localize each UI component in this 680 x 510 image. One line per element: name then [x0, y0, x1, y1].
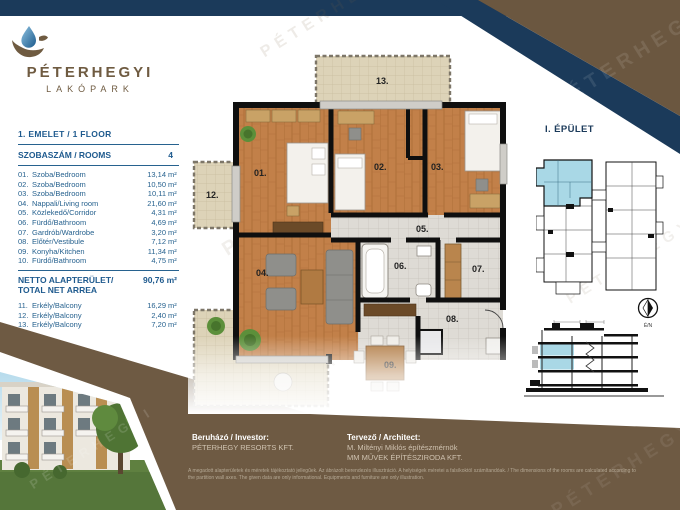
architect-block: Tervező / Architect: M. Miltényi Miklós …: [347, 432, 547, 463]
room-row: 05.Közlekedő/Corridor4,31m²: [18, 208, 179, 218]
room-unit: m²: [166, 170, 179, 180]
room-name: Szoba/Bedroom: [32, 170, 142, 180]
room-no: 05.: [18, 208, 32, 218]
room-area: 3,20: [142, 228, 166, 238]
room-schedule-panel: 1. EMELET / 1 FLOOR SZOBASZÁM / ROOMS 4 …: [18, 129, 179, 330]
room-unit: m²: [166, 208, 179, 218]
room-label-13: 13.: [376, 76, 389, 86]
room-unit: m²: [166, 256, 179, 266]
room-area: 11,34: [142, 247, 166, 257]
room-name: Előtér/Vestibule: [32, 237, 142, 247]
room-name: Erkély/Balcony: [32, 301, 142, 311]
room-label-01: 01.: [254, 168, 267, 178]
room-no: 06.: [18, 218, 32, 228]
net-area-value: 90,76 m²: [143, 275, 179, 296]
room-no: 09.: [18, 247, 32, 257]
room-name: Erkély/Balcony: [32, 320, 142, 330]
balcony-list: 11.Erkély/Balcony16,29m² 12.Erkély/Balco…: [18, 301, 179, 330]
building-title: I. ÉPÜLET: [545, 124, 594, 135]
room-label-05: 05.: [416, 224, 429, 234]
logo-subtitle: LAKÓPARK: [8, 84, 172, 94]
room-no: 10.: [18, 256, 32, 266]
room-name: Nappali/Living room: [32, 199, 142, 209]
rooms-count-label: SZOBASZÁM / ROOMS: [18, 150, 153, 160]
room-area: 2,40: [142, 311, 166, 321]
room-row: 02.Szoba/Bedroom10,50m²: [18, 180, 179, 190]
balcony-row: 13.Erkély/Balcony7,20m²: [18, 320, 179, 330]
room-area: 4,75: [142, 256, 166, 266]
room-label-03: 03.: [431, 162, 444, 172]
room-name: Konyha/Kitchen: [32, 247, 142, 257]
room-no: 01.: [18, 170, 32, 180]
rooms-count-value: 4: [153, 150, 179, 160]
net-area-label-2: TOTAL NET ARREA: [18, 285, 143, 296]
plan-fade: [188, 336, 524, 414]
balcony-row: 12.Erkély/Balcony2,40m²: [18, 311, 179, 321]
room-name: Fürdő/Bathroom: [32, 218, 142, 228]
room-no: 13.: [18, 320, 32, 330]
logo-drop-icon: [8, 24, 50, 62]
room-area: 10,50: [142, 180, 166, 190]
room-row: 10.Fürdő/Bathroom4,75m²: [18, 256, 179, 266]
room-row: 01.Szoba/Bedroom13,14m²: [18, 170, 179, 180]
architect-label: Tervező / Architect:: [347, 432, 547, 443]
architect-value-2: MM MŰVEK ÉPÍTÉSZIRODA KFT.: [347, 453, 547, 463]
room-label-02: 02.: [374, 162, 387, 172]
room-no: 12.: [18, 311, 32, 321]
room-list: 01.Szoba/Bedroom13,14m² 02.Szoba/Bedroom…: [18, 170, 179, 266]
investor-block: Beruházó / Investor: PÉTERHEGY RESORTS K…: [192, 432, 342, 453]
room-label-07: 07.: [472, 264, 485, 274]
room-unit: m²: [166, 237, 179, 247]
investor-value: PÉTERHEGY RESORTS KFT.: [192, 443, 342, 453]
room-unit: m²: [166, 199, 179, 209]
room-row: 04.Nappali/Living room21,60m²: [18, 199, 179, 209]
floor-header: 1. EMELET / 1 FLOOR: [18, 129, 179, 145]
room-area: 10,11: [142, 189, 166, 199]
room-row: 09.Konyha/Kitchen11,34m²: [18, 247, 179, 257]
room-unit: m²: [166, 189, 179, 199]
room-no: 07.: [18, 228, 32, 238]
balcony-row: 11.Erkély/Balcony16,29m²: [18, 301, 179, 311]
net-area-label-1: NETTO ALAPTERÜLET/: [18, 275, 143, 286]
room-unit: m²: [166, 228, 179, 238]
architect-value-1: M. Miltényi Miklós építészmérnök: [347, 443, 547, 453]
disclaimer: A megadott alapterületek és méretek tájé…: [188, 468, 672, 482]
building-section: [524, 316, 664, 404]
room-label-12: 12.: [206, 190, 219, 200]
room-no: 04.: [18, 199, 32, 209]
room-unit: m²: [166, 218, 179, 228]
brochure-page: PÉTERHEGYI LAKÓPARK PÉTERHEGYI PÉTERHEGY…: [0, 0, 680, 510]
room-area: 16,29: [142, 301, 166, 311]
room-area: 4,31: [142, 208, 166, 218]
room-unit: m²: [166, 247, 179, 257]
room-area: 13,14: [142, 170, 166, 180]
disclaimer-line-1: A megadott alapterületek és méretek tájé…: [188, 468, 672, 475]
room-no: 02.: [18, 180, 32, 190]
room-area: 21,60: [142, 199, 166, 209]
room-unit: m²: [166, 320, 179, 330]
rooms-count-row: SZOBASZÁM / ROOMS 4: [18, 145, 179, 166]
logo-title: PÉTERHEGYI: [8, 64, 172, 81]
room-no: 03.: [18, 189, 32, 199]
disclaimer-line-2: the partition wall axes. The given data …: [188, 475, 672, 482]
room-label-06: 06.: [394, 261, 407, 271]
room-name: Közlekedő/Corridor: [32, 208, 142, 218]
floor-plan: 01. 02. 03. 04. 05. 06. 07. 08. 09. 12. …: [188, 48, 524, 414]
room-row: 03.Szoba/Bedroom10,11m²: [18, 189, 179, 199]
room-label-08: 08.: [446, 314, 459, 324]
room-name: Fürdő/Bathroom: [32, 256, 142, 266]
room-label-04: 04.: [256, 268, 269, 278]
logo: PÉTERHEGYI LAKÓPARK: [8, 24, 172, 94]
net-area-block: NETTO ALAPTERÜLET/ TOTAL NET ARREA 90,76…: [18, 270, 179, 296]
building-key-plan: [536, 146, 664, 298]
room-name: Gardrób/Wardrobe: [32, 228, 142, 238]
room-area: 7,20: [142, 320, 166, 330]
room-row: 07.Gardrób/Wardrobe3,20m²: [18, 228, 179, 238]
room-unit: m²: [166, 180, 179, 190]
room-area: 7,12: [142, 237, 166, 247]
room-no: 11.: [18, 301, 32, 311]
room-name: Szoba/Bedroom: [32, 189, 142, 199]
room-row: 08.Előtér/Vestibule7,12m²: [18, 237, 179, 247]
room-name: Szoba/Bedroom: [32, 180, 142, 190]
room-unit: m²: [166, 301, 179, 311]
investor-label: Beruházó / Investor:: [192, 432, 342, 443]
room-name: Erkély/Balcony: [32, 311, 142, 321]
room-area: 4,69: [142, 218, 166, 228]
room-row: 06.Fürdő/Bathroom4,69m²: [18, 218, 179, 228]
room-unit: m²: [166, 311, 179, 321]
room-no: 08.: [18, 237, 32, 247]
